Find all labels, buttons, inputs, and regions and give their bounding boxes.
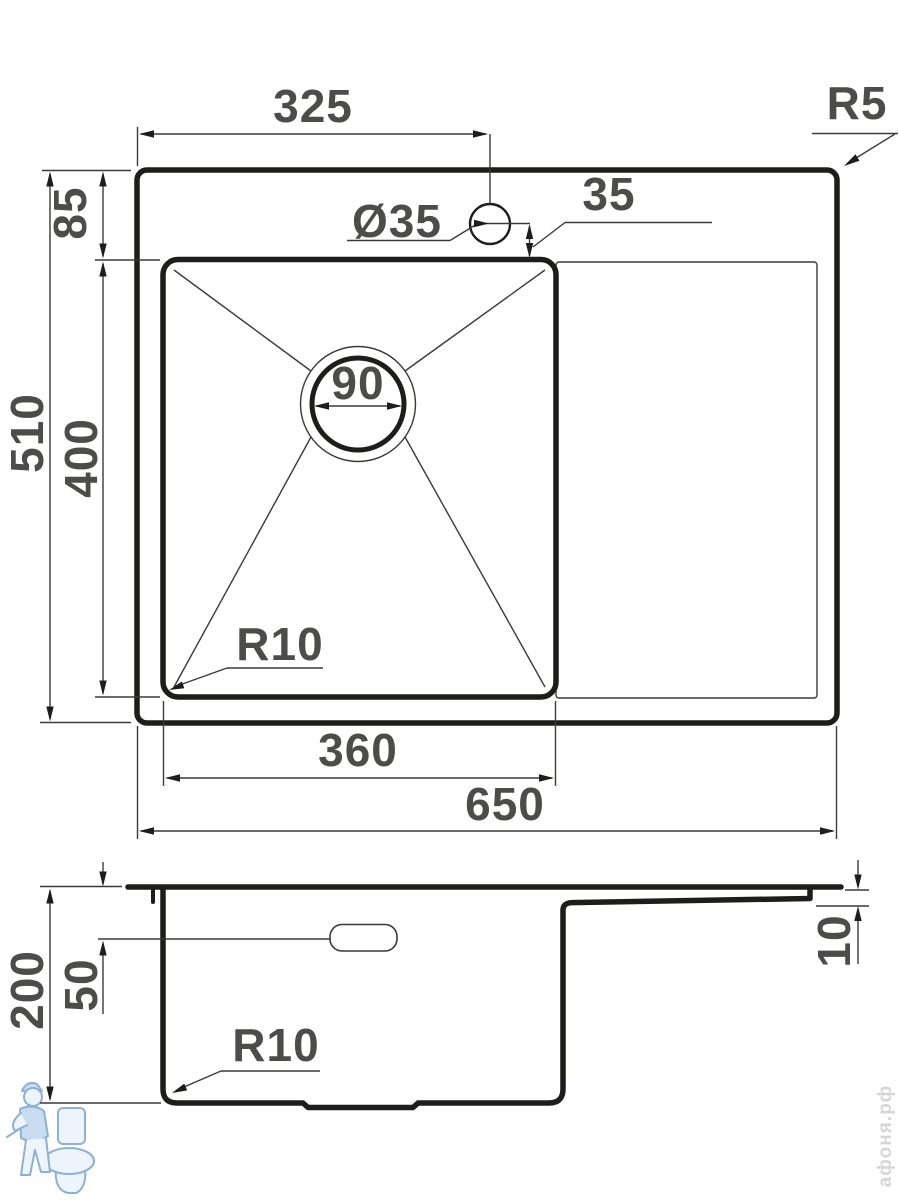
dim-tap-hole-offset: 325	[273, 80, 353, 132]
dim-bottom-corner-radius: R10	[232, 1019, 319, 1071]
dim-total-height: 200	[1, 950, 53, 1030]
overflow-slot	[330, 925, 397, 952]
dim-bowl-depth: 400	[55, 418, 107, 498]
dim-bowl-corner-radius: R10	[236, 618, 323, 670]
dim-tap-hole-to-bowl: 35	[582, 168, 635, 220]
dim-overflow-offset: 50	[55, 958, 107, 1011]
toilet-bowl-shape	[44, 1148, 94, 1174]
dim-total-width: 650	[465, 778, 545, 830]
dim-rim-thickness: 10	[808, 914, 860, 967]
drawing-svg: афоня.рф 90 325 R5	[0, 0, 900, 1200]
brand-watermark-text: афоня.рф	[875, 1085, 896, 1188]
toilet-tank-shape	[58, 1108, 85, 1144]
dim-outer-corner-radius: R5	[827, 77, 888, 129]
dim-drain-diameter: 90	[331, 357, 384, 409]
plumber-head-shape	[24, 1088, 42, 1106]
dim-bowl-width: 360	[318, 724, 398, 776]
sink-technical-drawing: афоня.рф 90 325 R5	[0, 0, 900, 1200]
dim-total-depth: 510	[1, 393, 53, 473]
dim-rim-to-bowl-top: 85	[44, 186, 96, 239]
dim-tap-hole-diameter: Ø35	[352, 195, 442, 247]
